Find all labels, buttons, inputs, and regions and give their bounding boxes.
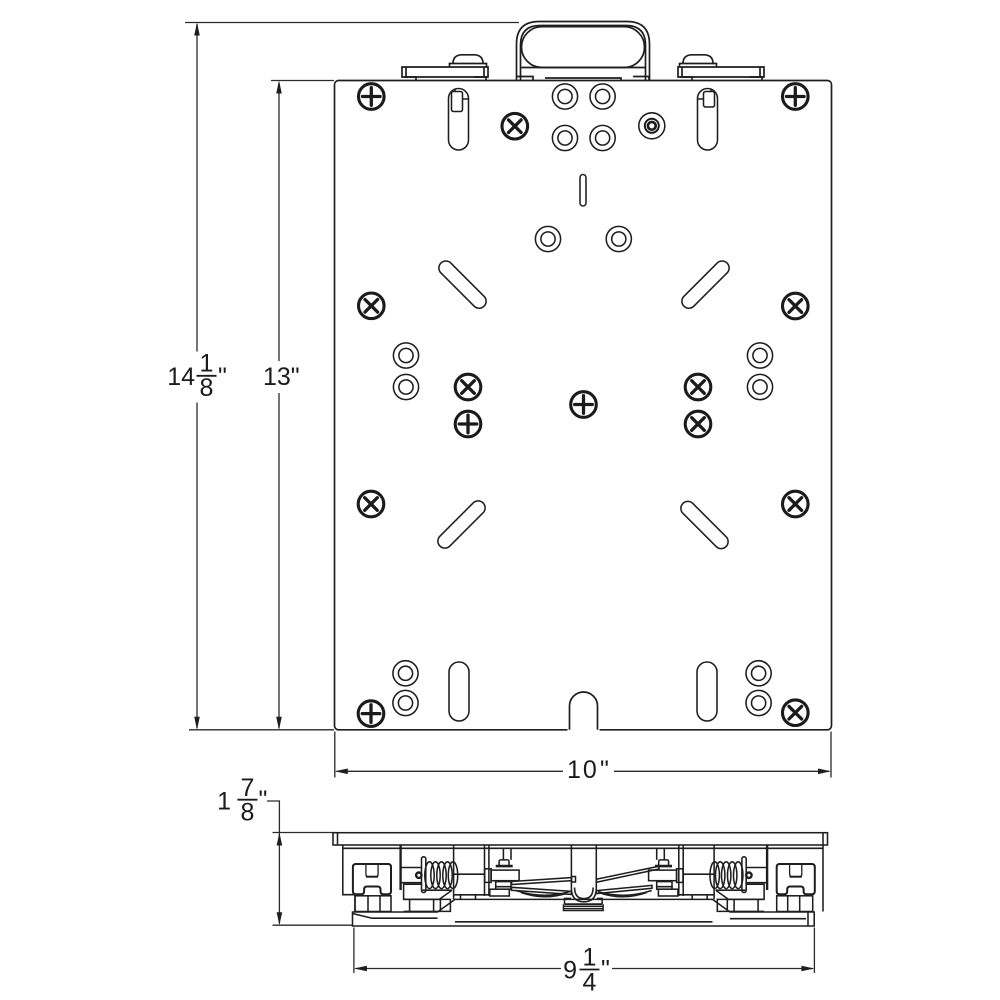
svg-text:8: 8 — [240, 799, 254, 827]
svg-text:": " — [601, 956, 610, 984]
svg-text:1: 1 — [217, 788, 231, 816]
svg-text:10: 10 — [567, 756, 599, 784]
svg-text:": " — [600, 756, 609, 784]
svg-text:": " — [259, 786, 268, 814]
svg-text:14: 14 — [167, 363, 195, 391]
svg-text:9: 9 — [563, 957, 577, 985]
svg-text:13": 13" — [263, 363, 300, 391]
svg-text:": " — [218, 363, 227, 391]
svg-text:8: 8 — [200, 374, 214, 402]
svg-text:4: 4 — [583, 968, 597, 996]
